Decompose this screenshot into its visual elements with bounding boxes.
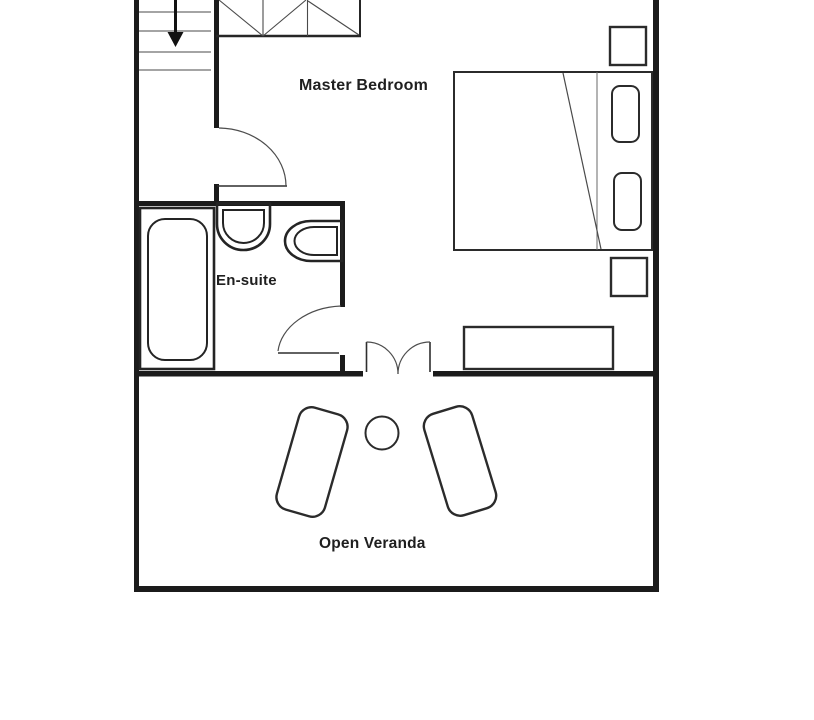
open-veranda-label: Open Veranda [319, 535, 426, 553]
door-swing-arc-right [398, 342, 430, 374]
bed-pillow-top [612, 86, 639, 142]
veranda-double-door [367, 342, 431, 374]
door-swing-arc [219, 128, 286, 186]
door-swing-arc [278, 306, 341, 351]
wall-door-stub [214, 184, 219, 203]
bed-pillow-bottom [614, 173, 641, 230]
master-bedroom-label: Master Bedroom [299, 77, 428, 95]
door-swing-arc-left [367, 342, 399, 374]
nightstand-top [610, 27, 646, 65]
bathtub-outer [140, 208, 214, 369]
bed-sheet-fold-line [563, 73, 601, 249]
bedroom-entry-door [217, 128, 287, 186]
floor-plan-drawing [0, 0, 814, 720]
floor-plan: Master Bedroom En-suite Open Veranda [0, 0, 814, 720]
ensuite-label: En-suite [216, 272, 277, 289]
lounge-chair-left [273, 404, 350, 520]
wall-veranda-divider-left [134, 371, 363, 377]
bench [464, 327, 613, 369]
ensuite-door [278, 306, 341, 353]
lounge-chair-right [421, 403, 500, 519]
bed-group [454, 27, 652, 369]
bathtub-inner [148, 219, 207, 360]
wall-stair [214, 0, 219, 128]
wardrobe [216, 0, 361, 36]
veranda-furniture [273, 403, 499, 520]
toilet-inner [295, 227, 338, 255]
wall-veranda-divider-right [433, 371, 659, 377]
wall-left [134, 0, 139, 592]
stair-direction-arrow [168, 0, 184, 47]
wardrobe-hanger-line [308, 1, 359, 35]
wall-ensuite-right-stub [340, 355, 345, 372]
wash-basin-inner [223, 210, 264, 243]
wardrobe-hanger-line [263, 0, 306, 36]
wall-right [653, 0, 659, 592]
round-table [366, 417, 399, 450]
double-bed [454, 72, 652, 250]
wardrobe-hanger-line [219, 0, 263, 36]
wall-bottom [134, 586, 659, 592]
nightstand-bottom [611, 258, 647, 296]
